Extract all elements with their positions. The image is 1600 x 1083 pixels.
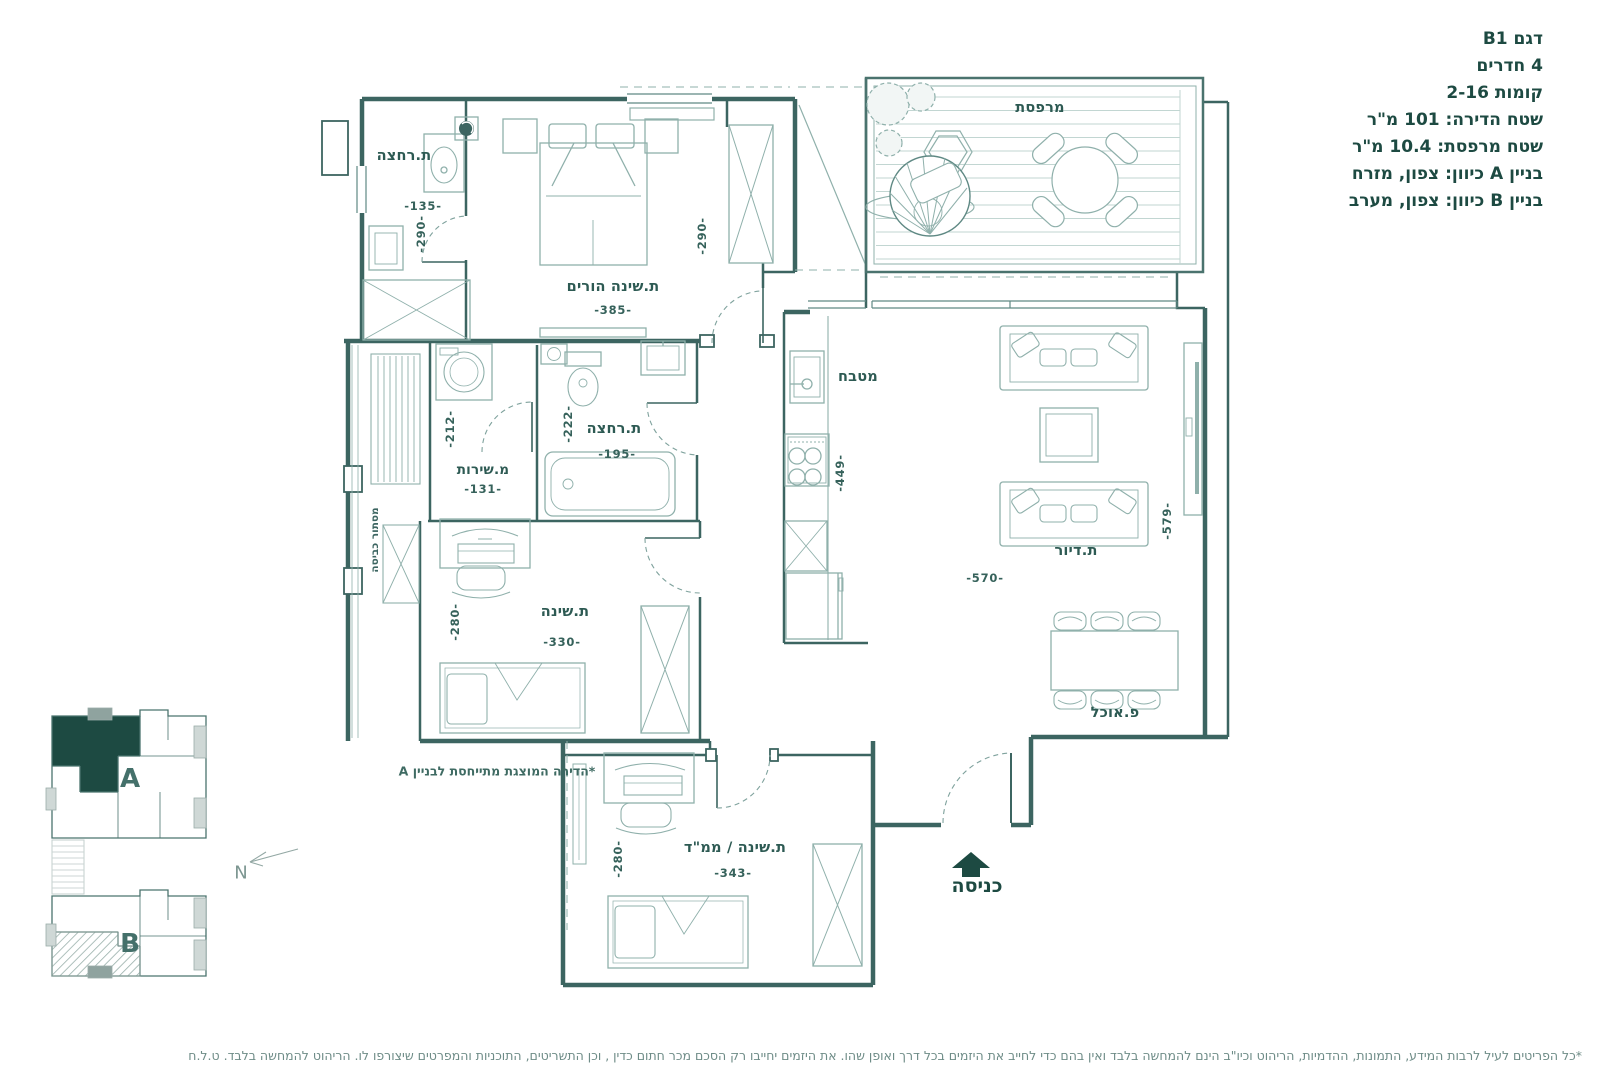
key-plan (46, 708, 298, 978)
entrance-arrow-icon (952, 852, 990, 877)
dim-bathroom-main-width: -195- (598, 447, 636, 461)
info-model: דגם B1 (1349, 26, 1543, 53)
dim-bedroom-middle-height: -280- (448, 603, 462, 641)
room-label-dining: פ.אוכל (1091, 705, 1140, 721)
info-building-a-direction: בניין A כיוון: צפון, מזרח (1349, 161, 1543, 188)
dim-bathroom-top-width: -135- (404, 199, 442, 213)
room-label-master-bedroom: ת.שינה הורים (567, 279, 660, 295)
dim-bathroom-main-height: -222- (561, 405, 575, 443)
dim-master-bedroom-height: -290- (695, 217, 709, 255)
info-floors: קומות 2-16 (1349, 80, 1543, 107)
dim-service-height: -212- (443, 410, 457, 448)
dim-bedroom-middle-width: -330- (543, 635, 581, 649)
label-laundry-screen: מסתור כביסה (369, 507, 381, 572)
key-plan-label-a: A (120, 764, 140, 794)
info-rooms: 4 חדרים (1349, 53, 1543, 80)
dim-living-height: -579- (1160, 502, 1174, 540)
hanging-chair (866, 156, 974, 236)
dim-bedroom-mamad-height: -280- (611, 840, 625, 878)
north-arrow-icon (250, 849, 298, 866)
info-building-b-direction: בניין B כיוון: צפון, מערב (1349, 188, 1543, 215)
dim-kitchen-height: -449- (833, 454, 847, 492)
key-plan-stairs (52, 840, 84, 894)
key-plan-label-b: B (120, 929, 140, 959)
info-balcony-area: שטח מרפסת: 10.4 מ"ר (1349, 134, 1543, 161)
building-note: *הדירה המוצגת מתייחסת לבניין A (399, 764, 596, 779)
room-label-bedroom-middle: ת.שינה (541, 604, 589, 620)
info-apartment-area: שטח הדירה: 101 מ"ר (1349, 107, 1543, 134)
room-label-bathroom-top: ת.רחצה (377, 148, 432, 164)
dim-master-bedroom-width: -385- (594, 303, 632, 317)
floor-plan-page: מרפסת ת.רחצה -135- -290- ת.שינה הורים -3… (0, 0, 1600, 1083)
room-label-kitchen: מטבח (838, 369, 878, 385)
plants (867, 83, 935, 156)
info-panel: דגם B1 4 חדרים קומות 2-16 שטח הדירה: 101… (1349, 26, 1543, 215)
dim-bathroom-top-height: -290- (414, 215, 428, 253)
disclaimer-text: *כל הפריטים לעיל לרבות המידע, התמונות, ה… (188, 1048, 1582, 1063)
label-entrance: כניסה (952, 875, 1003, 897)
room-label-balcony: מרפסת (1015, 100, 1065, 116)
dim-living-width: -570- (966, 571, 1004, 585)
windows (357, 94, 1177, 308)
room-label-service: מ.שירות (457, 462, 510, 478)
room-label-bathroom-main: ת.רחצה (587, 421, 642, 437)
room-label-living: ת.דיור (1054, 543, 1097, 559)
north-label: N (234, 863, 247, 884)
dim-bedroom-mamad-width: -343- (714, 866, 752, 880)
balcony-table-set (1029, 130, 1140, 230)
dim-service-width: -131- (464, 482, 502, 496)
room-label-bedroom-mamad: ת.שינה / ממ"ד (684, 840, 786, 856)
